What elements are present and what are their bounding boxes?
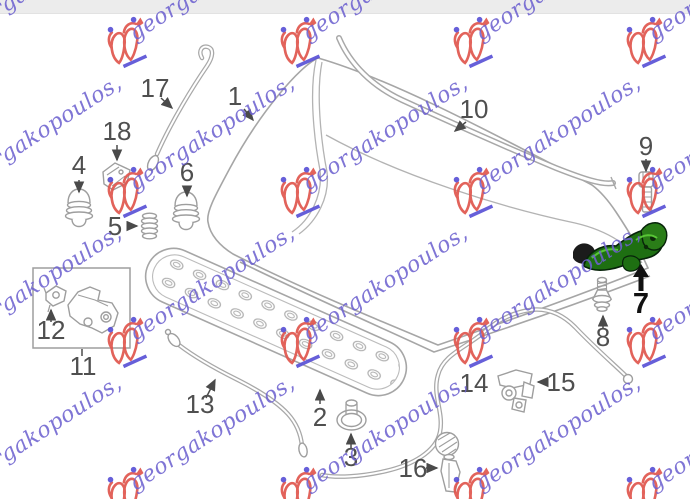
part-label-11: 11 — [70, 351, 97, 381]
bumper-4 — [66, 189, 93, 227]
hinge-7-highlighted — [573, 223, 667, 271]
insulator-pad — [137, 239, 416, 404]
diagram-line-art: 17 1 18 4 6 5 10 9 7 8 12 11 13 2 3 14 1… — [0, 0, 690, 499]
part-label-8: 8 — [596, 322, 610, 352]
part-label-13: 13 — [186, 389, 215, 419]
part-label-7: 7 — [633, 288, 649, 320]
parts-diagram-image: 17 1 18 4 6 5 10 9 7 8 12 11 13 2 3 14 1… — [0, 0, 690, 499]
part-label-18: 18 — [103, 116, 132, 146]
support-rod — [145, 47, 212, 173]
part-label-2: 2 — [313, 402, 327, 432]
part-label-1: 1 — [228, 81, 242, 111]
part-label-17: 17 — [141, 73, 170, 103]
lock-assembly-11 — [68, 287, 118, 333]
part-label-5: 5 — [108, 211, 122, 241]
latch-15 — [498, 370, 534, 412]
part-label-16: 16 — [399, 453, 428, 483]
part-label-3: 3 — [344, 442, 358, 472]
part-label-9: 9 — [639, 131, 653, 161]
bumper-6 — [173, 192, 200, 230]
handle-16 — [436, 433, 461, 493]
striker-12 — [44, 286, 66, 312]
clip-9 — [639, 172, 653, 212]
part-label-6: 6 — [180, 157, 194, 187]
plug-3 — [337, 400, 366, 430]
part-label-4: 4 — [72, 150, 86, 180]
part-label-15: 15 — [547, 367, 576, 397]
bolt-8 — [593, 278, 611, 312]
grommet-5 — [142, 213, 158, 239]
part-label-10: 10 — [460, 94, 489, 124]
part-label-14: 14 — [460, 368, 489, 398]
clip-18 — [103, 163, 130, 190]
part-label-12: 12 — [37, 315, 66, 345]
